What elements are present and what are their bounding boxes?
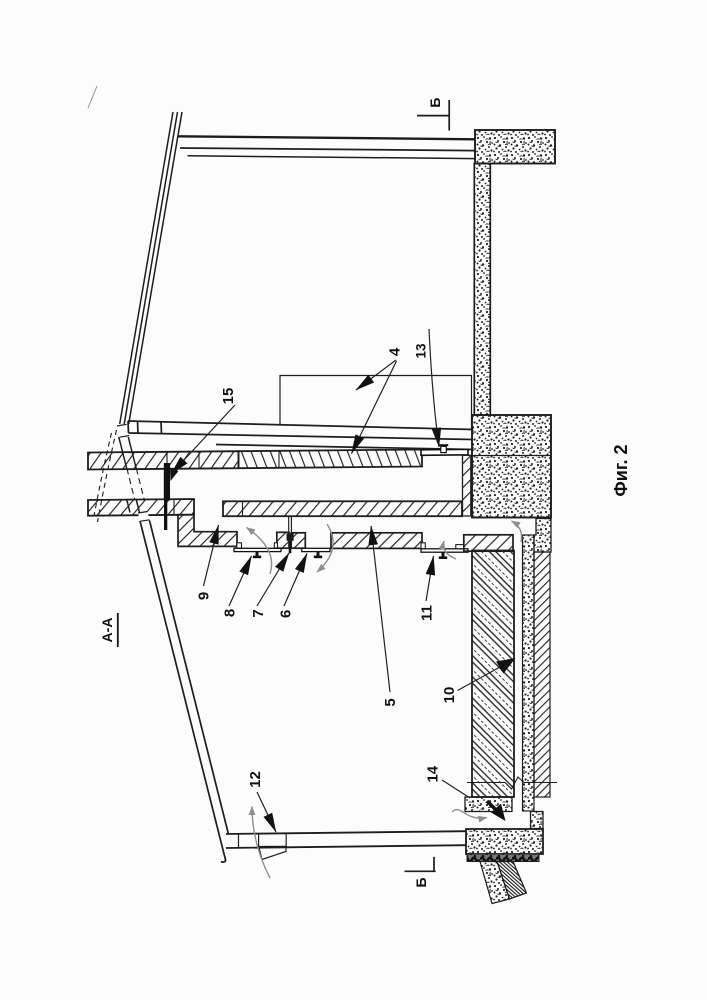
svg-text:7: 7 — [250, 609, 267, 617]
svg-text:А-А: А-А — [99, 618, 115, 643]
svg-text:11: 11 — [418, 605, 435, 621]
svg-text:6: 6 — [277, 610, 294, 618]
svg-text:5: 5 — [382, 698, 399, 706]
svg-text:13: 13 — [414, 343, 429, 359]
svg-text:Б: Б — [427, 98, 443, 108]
svg-text:4: 4 — [387, 347, 404, 356]
svg-text:8: 8 — [221, 609, 238, 617]
svg-text:10: 10 — [441, 687, 458, 704]
svg-text:15: 15 — [220, 388, 237, 405]
svg-text:12: 12 — [247, 771, 264, 788]
svg-text:14: 14 — [425, 765, 442, 782]
svg-text:9: 9 — [196, 592, 213, 600]
svg-text:Фиг. 2: Фиг. 2 — [611, 444, 631, 496]
svg-text:Б: Б — [413, 877, 429, 887]
